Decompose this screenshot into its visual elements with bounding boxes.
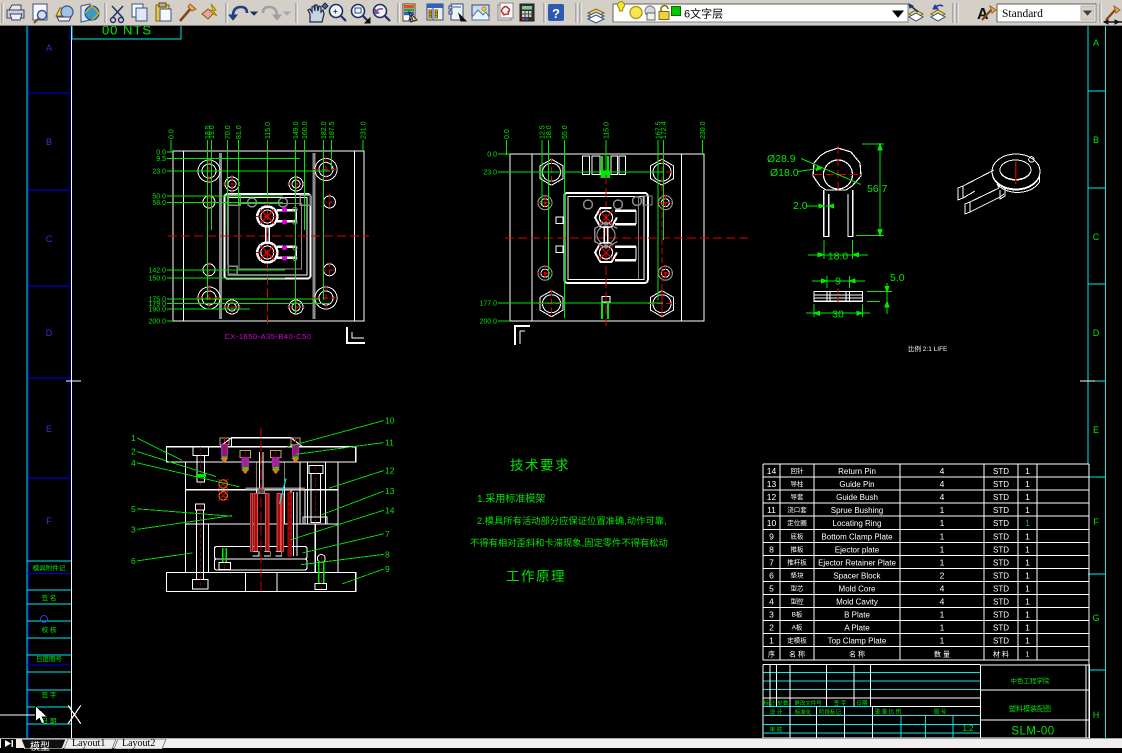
- svg-text:Return Pin: Return Pin: [838, 467, 876, 476]
- svg-text:0.0: 0.0: [504, 129, 511, 139]
- svg-text:C: C: [46, 234, 53, 244]
- svg-text:18.0: 18.0: [546, 125, 553, 139]
- svg-text:19.0: 19.0: [209, 125, 216, 139]
- svg-text:6文字层: 6文字层: [684, 7, 723, 21]
- svg-text:A: A: [1093, 38, 1099, 48]
- svg-text:6: 6: [769, 570, 774, 580]
- svg-text:底板: 底板: [791, 531, 805, 540]
- svg-text:30: 30: [832, 309, 844, 321]
- svg-text:4: 4: [940, 479, 945, 489]
- svg-text:D: D: [46, 328, 53, 338]
- svg-text:Bottom Clamp Plate: Bottom Clamp Plate: [821, 532, 893, 541]
- svg-text:11: 11: [767, 505, 776, 515]
- svg-text:190.0: 190.0: [148, 307, 166, 314]
- svg-text:1: 1: [940, 544, 945, 554]
- svg-text:D: D: [1093, 328, 1100, 338]
- svg-text:日度图号: 日度图号: [36, 654, 63, 663]
- svg-text:B板: B板: [792, 610, 803, 619]
- svg-text:STD: STD: [993, 637, 1009, 646]
- svg-text:H: H: [1093, 710, 1100, 720]
- svg-text:C: C: [1093, 232, 1100, 242]
- svg-text:13: 13: [385, 486, 395, 496]
- svg-text:177.0: 177.0: [479, 301, 497, 308]
- svg-text:7: 7: [769, 557, 774, 567]
- svg-text:1: 1: [1025, 531, 1030, 541]
- svg-text:1: 1: [1025, 518, 1030, 528]
- svg-text:签 名: 签 名: [42, 593, 57, 602]
- svg-text:STD: STD: [993, 493, 1009, 502]
- svg-text:2.模具所有活动部分应保证位置准确,动作可靠,: 2.模具所有活动部分应保证位置准确,动作可靠,: [477, 515, 667, 526]
- svg-text:9.5: 9.5: [156, 156, 166, 163]
- svg-text:F: F: [1093, 517, 1099, 527]
- svg-text:Ø28.9: Ø28.9: [767, 153, 796, 165]
- svg-text:Guide Bush: Guide Bush: [836, 493, 878, 502]
- svg-text:Ejector Retainer Plate: Ejector Retainer Plate: [818, 558, 896, 567]
- svg-text:STD: STD: [993, 532, 1009, 541]
- svg-text:0.0: 0.0: [168, 129, 175, 139]
- svg-text:1:2: 1:2: [962, 724, 974, 733]
- svg-text:?: ?: [552, 6, 560, 21]
- svg-text:200.0: 200.0: [148, 319, 166, 326]
- svg-text:2: 2: [769, 623, 774, 633]
- svg-text:型芯: 型芯: [791, 583, 805, 592]
- svg-text:00 NTS: 00 NTS: [102, 26, 152, 38]
- svg-text:比例 2:1 LIFE: 比例 2:1 LIFE: [908, 344, 948, 353]
- svg-text:1: 1: [131, 433, 136, 443]
- svg-text:1: 1: [1025, 544, 1030, 554]
- svg-text:10: 10: [385, 416, 395, 426]
- svg-text:81.0: 81.0: [236, 125, 243, 139]
- svg-text:更改文件号: 更改文件号: [794, 699, 822, 707]
- svg-text:工作原理: 工作原理: [506, 569, 566, 584]
- svg-text:B Plate: B Plate: [844, 611, 870, 620]
- svg-text:STD: STD: [993, 571, 1009, 580]
- svg-text:231.0: 231.0: [360, 121, 367, 139]
- svg-text:5.0: 5.0: [890, 272, 905, 284]
- svg-text:回针: 回针: [791, 466, 805, 475]
- svg-text:塑料模装配图: 塑料模装配图: [1009, 704, 1051, 713]
- svg-text:150.0: 150.0: [148, 276, 166, 283]
- svg-text:型腔: 型腔: [791, 597, 805, 606]
- svg-text:浇口套: 浇口套: [787, 505, 807, 514]
- svg-text:14: 14: [385, 505, 395, 515]
- svg-text:6: 6: [131, 556, 136, 566]
- svg-text:名 称: 名 称: [849, 650, 865, 659]
- svg-text:Locating Ring: Locating Ring: [833, 519, 882, 528]
- svg-text:导套: 导套: [791, 492, 805, 501]
- svg-text:13: 13: [767, 479, 777, 489]
- svg-text:STD: STD: [993, 558, 1009, 567]
- svg-text:STD: STD: [993, 467, 1009, 476]
- svg-text:重 量 比 例: 重 量 比 例: [875, 708, 902, 716]
- svg-text:STD: STD: [993, 584, 1009, 593]
- svg-text:STD: STD: [993, 519, 1009, 528]
- svg-text:设 计: 设 计: [770, 708, 783, 716]
- svg-text:8: 8: [769, 544, 774, 554]
- svg-text:4: 4: [940, 492, 945, 502]
- svg-text:标记: 标记: [763, 699, 775, 707]
- svg-text:B: B: [1093, 135, 1099, 145]
- svg-text:7: 7: [385, 529, 390, 539]
- svg-text:E: E: [46, 424, 52, 434]
- svg-text:58.0: 58.0: [152, 200, 166, 207]
- svg-text:数 量: 数 量: [934, 650, 950, 659]
- svg-text:定模板: 定模板: [787, 636, 807, 645]
- svg-text:Top Clamp Plate: Top Clamp Plate: [828, 637, 887, 646]
- svg-text:2: 2: [940, 570, 945, 580]
- svg-text:导柱: 导柱: [791, 479, 805, 488]
- svg-text:Spacer Block: Spacer Block: [833, 571, 881, 580]
- svg-text:12: 12: [767, 492, 777, 502]
- svg-text:1: 1: [1025, 557, 1030, 567]
- svg-text:0.0: 0.0: [487, 152, 497, 159]
- svg-text:4: 4: [940, 597, 945, 607]
- svg-text:1: 1: [940, 636, 945, 646]
- svg-text:STD: STD: [993, 624, 1009, 633]
- svg-text:1: 1: [1025, 479, 1030, 489]
- svg-text:A板: A板: [792, 623, 803, 632]
- svg-text:CX-1650-A35-B40-C50: CX-1650-A35-B40-C50: [224, 332, 311, 341]
- svg-text:9: 9: [835, 276, 841, 288]
- svg-text:3: 3: [769, 610, 774, 620]
- svg-text:142.0: 142.0: [148, 268, 166, 275]
- svg-text:3: 3: [131, 524, 136, 534]
- svg-text:STD: STD: [993, 545, 1009, 554]
- svg-text:技术要求: 技术要求: [510, 458, 570, 473]
- svg-text:1: 1: [1025, 492, 1030, 502]
- svg-text:Standard: Standard: [1002, 8, 1043, 20]
- svg-text:4: 4: [131, 458, 136, 468]
- svg-text:8: 8: [385, 549, 390, 559]
- svg-text:12: 12: [385, 466, 395, 476]
- svg-text:115.0: 115.0: [604, 122, 611, 139]
- svg-text:E: E: [1093, 425, 1099, 435]
- svg-text:Mold Cavity: Mold Cavity: [836, 598, 878, 607]
- svg-text:2.0: 2.0: [793, 200, 808, 212]
- svg-text:1: 1: [1025, 623, 1030, 633]
- svg-text:149.0: 149.0: [293, 121, 300, 139]
- svg-text:推杆板: 推杆板: [787, 557, 807, 566]
- svg-text:1: 1: [940, 518, 945, 528]
- svg-text:图 号: 图 号: [934, 708, 947, 716]
- svg-text:200.0: 200.0: [479, 319, 497, 326]
- svg-text:序: 序: [768, 650, 775, 659]
- svg-text:Mold Core: Mold Core: [839, 584, 876, 593]
- svg-text:23.0: 23.0: [152, 169, 166, 176]
- svg-text:A Plate: A Plate: [844, 624, 870, 633]
- svg-text:115.0: 115.0: [265, 122, 272, 139]
- svg-text:1: 1: [940, 623, 945, 633]
- svg-text:1: 1: [1025, 610, 1030, 620]
- svg-text:阶段标记: 阶段标记: [819, 708, 842, 716]
- svg-text:1: 1: [1025, 505, 1030, 515]
- svg-text:9: 9: [769, 531, 774, 541]
- svg-text:172.4: 172.4: [661, 121, 668, 139]
- svg-text:5: 5: [131, 504, 136, 514]
- svg-text:STD: STD: [993, 611, 1009, 620]
- svg-text:处数: 处数: [777, 699, 789, 707]
- svg-text:Sprue Bushing: Sprue Bushing: [831, 506, 883, 515]
- svg-text:230.0: 230.0: [700, 121, 707, 139]
- svg-text:5: 5: [769, 583, 774, 593]
- svg-text:材 料: 材 料: [993, 650, 1009, 659]
- svg-text:G: G: [1092, 613, 1099, 623]
- svg-text:1: 1: [940, 610, 945, 620]
- svg-text:2: 2: [131, 447, 136, 457]
- svg-text:定位圈: 定位圈: [787, 518, 807, 527]
- svg-text:11: 11: [385, 438, 394, 448]
- svg-text:STD: STD: [993, 598, 1009, 607]
- svg-text:模具附件记: 模具附件记: [33, 563, 66, 572]
- svg-text:F: F: [46, 516, 52, 526]
- svg-text:签 字: 签 字: [834, 699, 847, 707]
- svg-text:160.0: 160.0: [302, 121, 309, 139]
- svg-text:校 核: 校 核: [42, 625, 57, 634]
- svg-text:4: 4: [940, 583, 945, 593]
- svg-text:日期: 日期: [856, 700, 868, 707]
- svg-text:23.0: 23.0: [483, 170, 497, 177]
- svg-text:Ø18.0: Ø18.0: [770, 167, 799, 179]
- svg-text:Ejector plate: Ejector plate: [835, 545, 880, 554]
- svg-text:10: 10: [767, 518, 777, 528]
- svg-text:名 称: 名 称: [789, 650, 805, 659]
- svg-text:标准化: 标准化: [795, 708, 812, 716]
- svg-text:4: 4: [769, 597, 774, 607]
- svg-text:审 核: 审 核: [770, 726, 783, 734]
- svg-text:1: 1: [940, 505, 945, 515]
- svg-text:1: 1: [1025, 570, 1030, 580]
- svg-text:1: 1: [1025, 583, 1030, 593]
- svg-text:1: 1: [1025, 466, 1030, 476]
- svg-text:1.采用标准模架: 1.采用标准模架: [477, 493, 545, 505]
- svg-text:A: A: [408, 14, 414, 23]
- svg-text:+: +: [333, 7, 338, 16]
- svg-text:中色工程学院: 中色工程学院: [1011, 676, 1051, 685]
- svg-text:STD: STD: [993, 506, 1009, 515]
- svg-text:Guide Pin: Guide Pin: [839, 480, 874, 489]
- svg-text:1: 1: [1025, 636, 1030, 646]
- svg-text:不得有相对歪斜和卡滞现象,固定零件不得有松动: 不得有相对歪斜和卡滞现象,固定零件不得有松动: [470, 537, 668, 548]
- svg-text:A: A: [46, 43, 52, 53]
- svg-text:1: 1: [1025, 597, 1030, 607]
- svg-text:18.0: 18.0: [828, 251, 849, 263]
- svg-text:4: 4: [940, 466, 945, 476]
- svg-text:1: 1: [940, 557, 945, 567]
- svg-text:1: 1: [1026, 652, 1030, 659]
- svg-text:187.5: 187.5: [329, 121, 336, 139]
- svg-text:签 字: 签 字: [42, 690, 57, 699]
- svg-text:1: 1: [769, 636, 774, 646]
- svg-text:推板: 推板: [791, 544, 805, 553]
- svg-text:55.0: 55.0: [562, 125, 569, 139]
- svg-text:70.0: 70.0: [225, 125, 232, 139]
- svg-text:56.7: 56.7: [867, 183, 888, 195]
- svg-text:1: 1: [940, 531, 945, 541]
- svg-text:SLM-00: SLM-00: [1011, 726, 1054, 738]
- svg-text:182.0: 182.0: [321, 121, 328, 139]
- svg-text:垫块: 垫块: [791, 570, 805, 579]
- svg-text:9: 9: [385, 564, 390, 574]
- svg-text:B: B: [46, 137, 52, 147]
- svg-text:14: 14: [767, 466, 777, 476]
- svg-text:STD: STD: [993, 480, 1009, 489]
